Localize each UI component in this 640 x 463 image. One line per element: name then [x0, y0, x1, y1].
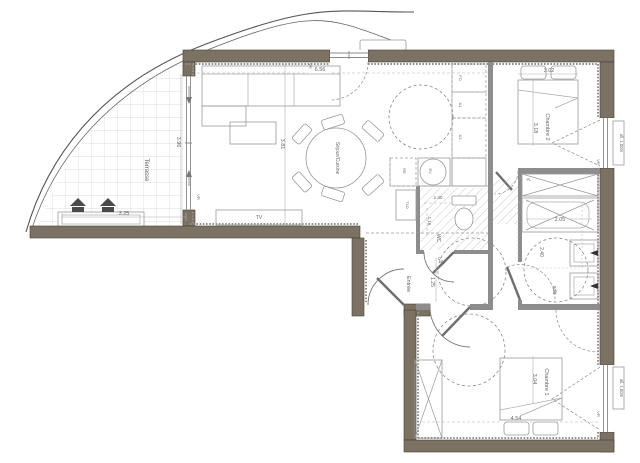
wall-segment	[470, 304, 493, 310]
wall-segment	[352, 238, 364, 316]
dim-chambre2-width: 3.02	[544, 68, 555, 74]
label-tv: TV	[256, 215, 263, 221]
wall-segment	[518, 168, 600, 174]
wc-room	[420, 178, 518, 250]
hob	[452, 158, 486, 186]
dim-tub: 2.05	[555, 217, 566, 223]
label-allege-chambre2: all. 1.00m	[619, 134, 624, 153]
labels: Terrasse Séjour/Cuisine Chambre 2 Chambr…	[119, 63, 624, 422]
terrace	[26, 11, 414, 232]
wall-segment	[488, 62, 493, 304]
room-label-chambre2: Chambre 2	[544, 113, 550, 140]
wall-segment	[454, 250, 488, 254]
label-vr-chambre2: VR	[596, 159, 601, 165]
wardrobe-pl	[522, 174, 598, 196]
label-tld: TLD	[405, 201, 410, 209]
room-label-entree: Entrée	[405, 276, 411, 292]
sliding-window-terrace	[185, 76, 192, 210]
sejour-furniture	[202, 66, 385, 225]
label-vr-terrace: VR	[196, 194, 201, 200]
coffee-table	[230, 122, 276, 144]
layout-guide	[518, 202, 582, 268]
label-a1: A1	[458, 103, 463, 109]
sofa	[202, 66, 340, 126]
dim-sejour-depth: 3.81	[279, 139, 285, 150]
dim-chambre1-width: 4.54	[511, 416, 522, 422]
bathtub	[522, 198, 598, 232]
wall-segment	[30, 226, 360, 238]
terrace-planter	[58, 212, 144, 227]
dim-terrasse-depth: 3.96	[175, 137, 181, 148]
label-fo: FO	[458, 75, 463, 81]
wall-segment	[416, 186, 420, 250]
dim-sejour-width: 6.56	[315, 67, 326, 73]
dim-entree: 1.25	[429, 277, 435, 287]
room-label-terrasse: Terrasse	[143, 158, 149, 182]
dim-wc-width: 1.30	[434, 195, 443, 200]
chambre1-furniture	[415, 358, 562, 438]
sdb-door	[507, 264, 555, 300]
room-label-sejour: Séjour/Cuisine	[334, 142, 340, 175]
wall-segment	[404, 310, 416, 440]
chambre1-door	[430, 307, 598, 352]
sink	[418, 158, 450, 186]
oven	[452, 64, 486, 92]
bathroom	[518, 174, 598, 299]
label-ev: EV	[428, 168, 433, 174]
wall-segment	[368, 50, 614, 62]
entrance-door	[368, 269, 404, 305]
label-pl: PL	[527, 177, 533, 182]
wall-segment	[518, 304, 600, 310]
facade-end-cap	[360, 40, 406, 51]
wall-segment	[518, 174, 522, 262]
dim-terrasse-width: 3.25	[119, 211, 130, 217]
wall-segment	[600, 62, 614, 118]
wardrobe	[415, 360, 442, 438]
label-vr-bay: VR	[308, 63, 313, 69]
label-re: RE	[402, 168, 407, 174]
wall-segment	[416, 250, 424, 254]
corridor-hatch	[493, 178, 518, 224]
dim-chambre1-depth: 3.04	[531, 374, 537, 385]
floor-plan: Terrasse Séjour/Cuisine Chambre 2 Chambr…	[0, 0, 640, 463]
bay-window-top	[330, 50, 368, 100]
appliance	[452, 118, 486, 158]
dim-wc-door: 0.94	[437, 256, 447, 266]
wall-segment	[183, 50, 330, 62]
dim-sdb-turning: 2.40	[538, 247, 544, 257]
label-allege-chambre1: all. 1.00m	[619, 379, 624, 398]
wall-segment	[600, 168, 614, 365]
bed	[500, 358, 562, 435]
dim-chambre2-depth: 3.18	[532, 123, 538, 134]
washbasin	[570, 240, 598, 266]
window-chambre2	[552, 118, 624, 168]
appliance	[452, 92, 486, 118]
dim-wc-depth: 1.16	[427, 217, 432, 226]
room-label-sdb: sdb	[551, 286, 557, 295]
room-label-chambre1: Chambre 1	[543, 368, 549, 395]
label-vr-chambre1: VR	[596, 411, 601, 417]
wall-segment	[416, 304, 430, 310]
room-label-wc: WC	[435, 234, 441, 243]
label-a3: A3	[458, 135, 463, 141]
wall-segment	[404, 440, 614, 452]
